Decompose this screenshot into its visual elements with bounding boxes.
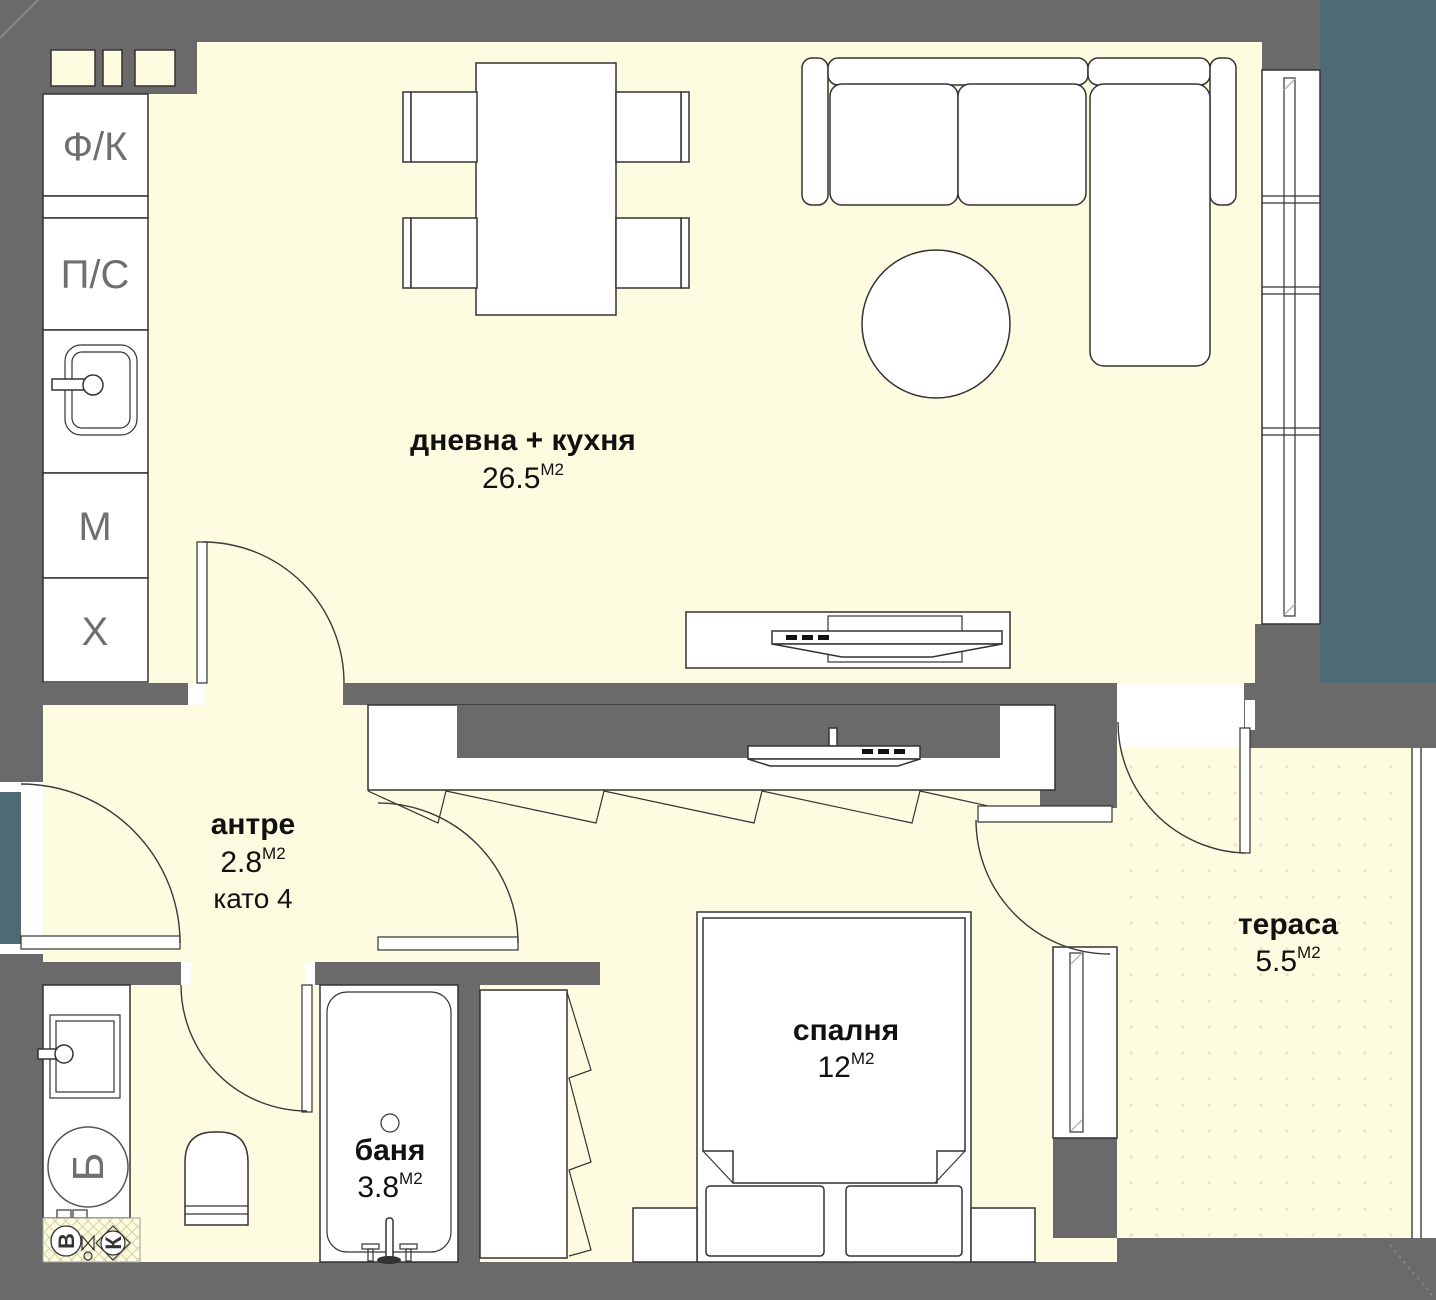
living-window <box>1262 70 1320 624</box>
coffee-table <box>862 250 1010 398</box>
cabinet-label-fridge: Ф/К <box>63 125 129 169</box>
dining-table <box>476 63 616 315</box>
chair-back <box>403 218 411 288</box>
sofa-armrest-right <box>1210 58 1236 205</box>
wall-terrace-top <box>1244 683 1436 748</box>
terrace-floor-texture <box>1117 748 1411 1238</box>
chair-seat <box>411 92 477 162</box>
tv-ports <box>862 749 905 754</box>
bed-pillow <box>846 1186 962 1256</box>
wall-bottom <box>0 1262 1117 1300</box>
cabinet-label-dishwasher: П/С <box>61 253 130 297</box>
sewer-label: К <box>101 1236 126 1250</box>
room-label-bedroom: спалня <box>793 1014 899 1047</box>
room-label-hall: антре <box>211 808 296 841</box>
nightstand-left <box>633 1208 697 1262</box>
room-label-living: дневна + кухня <box>410 424 636 457</box>
bedroom-door-leaf <box>378 937 518 950</box>
kitchen-door-threshold <box>188 683 205 705</box>
terrace-door-leaf <box>1240 728 1250 853</box>
chair-back <box>681 218 689 288</box>
boiler-label: Б <box>64 1153 113 1182</box>
entrance-door-leaf <box>21 936 180 949</box>
wall-kitchen-stub <box>0 683 197 705</box>
room-note-hall: като 4 <box>213 883 292 914</box>
sofa-back-chaise <box>1088 58 1210 85</box>
bed-pillow <box>706 1186 824 1256</box>
floor-plan: Ф/К П/С М Х <box>0 0 1436 1300</box>
cabinet-label-m: М <box>78 505 111 549</box>
nightstand-right <box>971 1208 1035 1262</box>
toilet-icon <box>185 1132 248 1225</box>
sofa-seat-cushion <box>830 84 958 205</box>
sofa-armrest-left <box>802 58 828 205</box>
tv-ports <box>786 635 829 640</box>
room-label-terrace: тераса <box>1238 908 1338 941</box>
sofa-seat-cushion <box>958 84 1086 205</box>
wall-bath-closet-divider <box>458 985 480 1262</box>
chair-seat <box>616 218 681 288</box>
sofa-back <box>828 58 1088 85</box>
utility-box: В К <box>43 1218 140 1262</box>
kitchen-door-leaf <box>197 542 207 683</box>
wall-right-below-window <box>1255 624 1320 683</box>
cabinet-small <box>43 196 148 218</box>
bedroom-terrace-door-leaf <box>978 806 1112 822</box>
window-frame <box>1053 947 1117 1138</box>
bathroom-door-leaf <box>302 985 312 1112</box>
tv-base <box>748 759 920 766</box>
wall-top-right-corner <box>1262 42 1320 70</box>
wall-living-bottom <box>343 683 1040 705</box>
closet-body <box>480 990 567 1258</box>
chair-seat <box>411 218 477 288</box>
exterior-block-right <box>1320 0 1436 683</box>
entrance-exterior-strip <box>0 792 21 944</box>
wall-left-upper <box>0 42 43 790</box>
window-pane <box>103 50 122 86</box>
wall-left-lower <box>0 945 43 1300</box>
wall-bottom-terrace <box>1117 1238 1436 1300</box>
bathroom-door-jamb <box>305 962 315 985</box>
window-pane <box>135 50 175 86</box>
room-label-bathroom: баня <box>355 1134 426 1167</box>
window-frame <box>1262 70 1320 624</box>
cabinet-label-x: Х <box>82 610 109 654</box>
kitchen-window-panes <box>51 50 175 86</box>
water-meter-label: В <box>54 1233 79 1249</box>
bedroom-window <box>1053 947 1117 1138</box>
wall-top <box>0 0 1320 42</box>
chair-back <box>681 92 689 162</box>
terrace-door-jamb <box>1245 700 1255 730</box>
wall-bath-top-left <box>43 962 188 985</box>
terrace-railing <box>1412 748 1421 1238</box>
tv-stand <box>829 728 837 746</box>
window-pane <box>51 50 95 86</box>
wall-below-bedroom-window <box>1053 1138 1117 1238</box>
wall-bath-top-right <box>310 962 600 985</box>
chair-seat <box>616 92 681 162</box>
bathroom-door-jamb <box>181 962 191 985</box>
kitchen-cabinets: Ф/К П/С М Х <box>43 94 148 682</box>
tv-unit-living <box>686 612 1010 668</box>
chair-back <box>403 92 411 162</box>
sofa-chaise-cushion <box>1090 84 1210 366</box>
bathtub-icon <box>320 985 458 1264</box>
